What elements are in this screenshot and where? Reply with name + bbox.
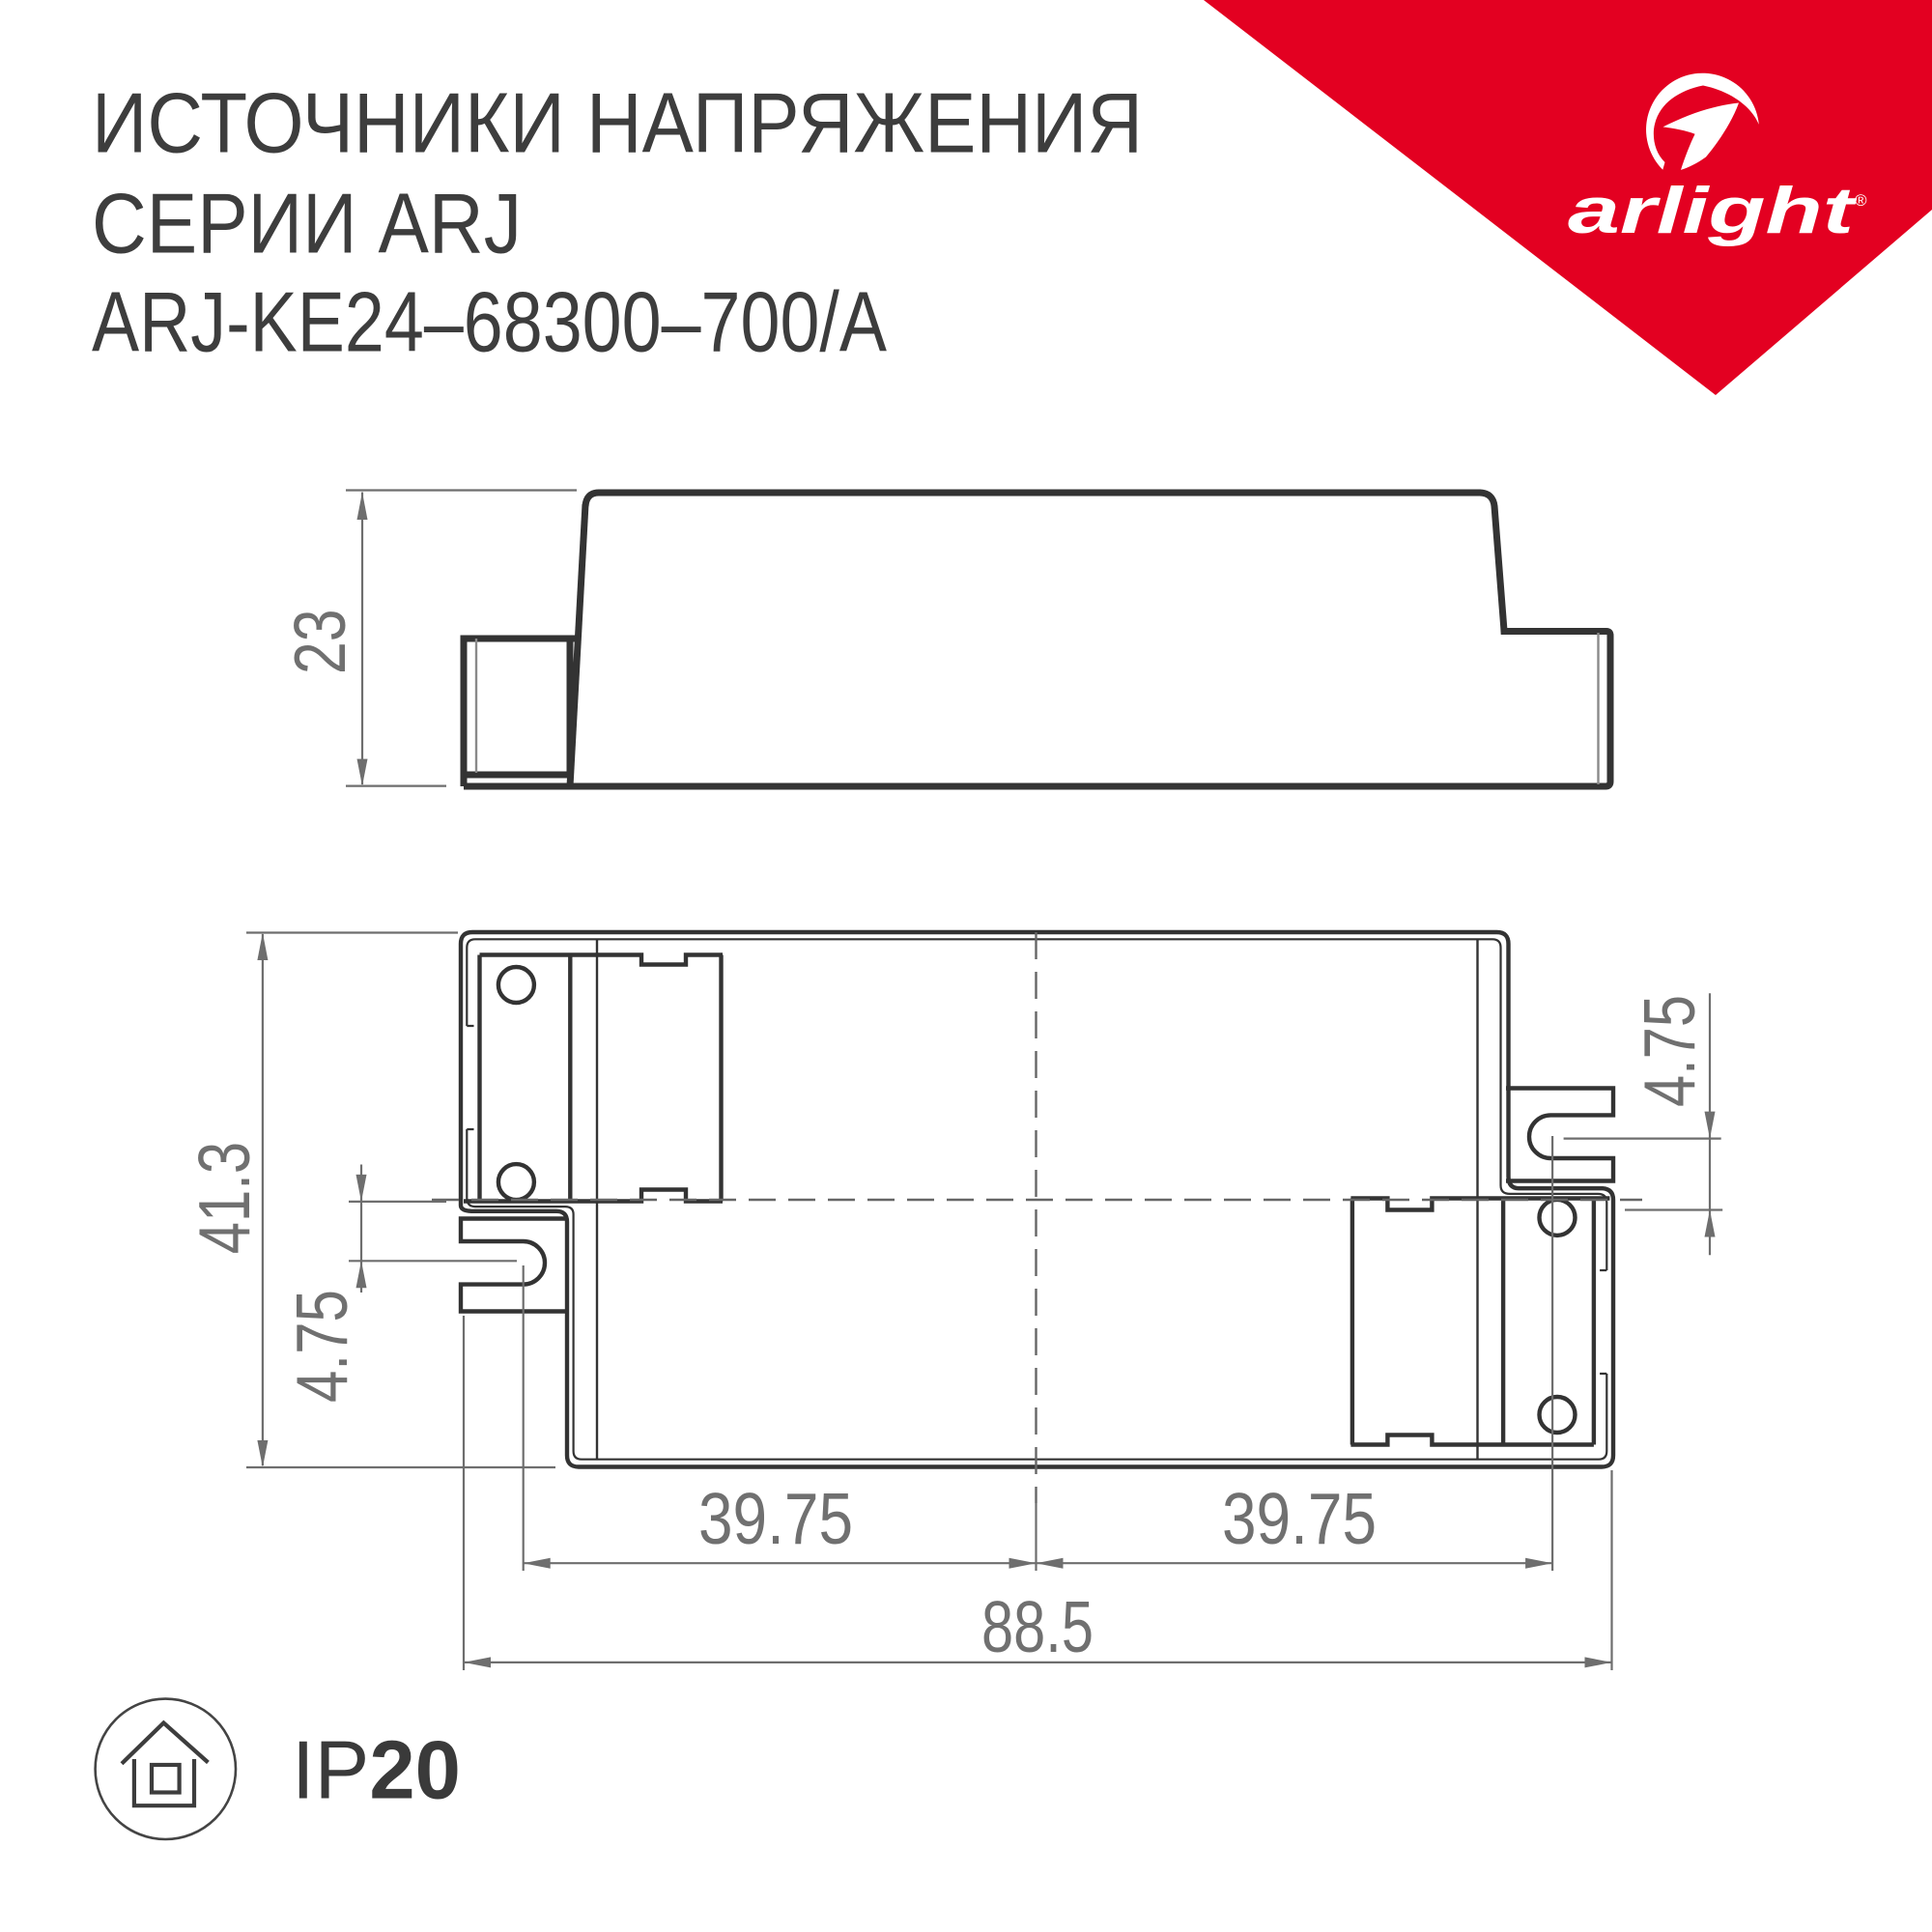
svg-text:4.75: 4.75 bbox=[281, 1290, 362, 1403]
svg-text:88.5: 88.5 bbox=[981, 1586, 1094, 1667]
svg-text:23: 23 bbox=[279, 610, 360, 675]
svg-text:IP20: IP20 bbox=[292, 1725, 461, 1817]
svg-text:ИСТОЧНИКИ НАПРЯЖЕНИЯ: ИСТОЧНИКИ НАПРЯЖЕНИЯ bbox=[92, 74, 1143, 170]
svg-text:ARJ-KE24–68300–700/A: ARJ-KE24–68300–700/A bbox=[92, 274, 887, 370]
svg-text:39.75: 39.75 bbox=[698, 1478, 853, 1559]
svg-text:®: ® bbox=[1855, 191, 1867, 210]
svg-text:СЕРИИ ARJ: СЕРИИ ARJ bbox=[92, 176, 522, 271]
svg-text:4.75: 4.75 bbox=[1629, 995, 1710, 1107]
svg-text:41.3: 41.3 bbox=[184, 1142, 265, 1255]
svg-text:arlight: arlight bbox=[1568, 174, 1857, 247]
svg-text:39.75: 39.75 bbox=[1222, 1478, 1377, 1559]
